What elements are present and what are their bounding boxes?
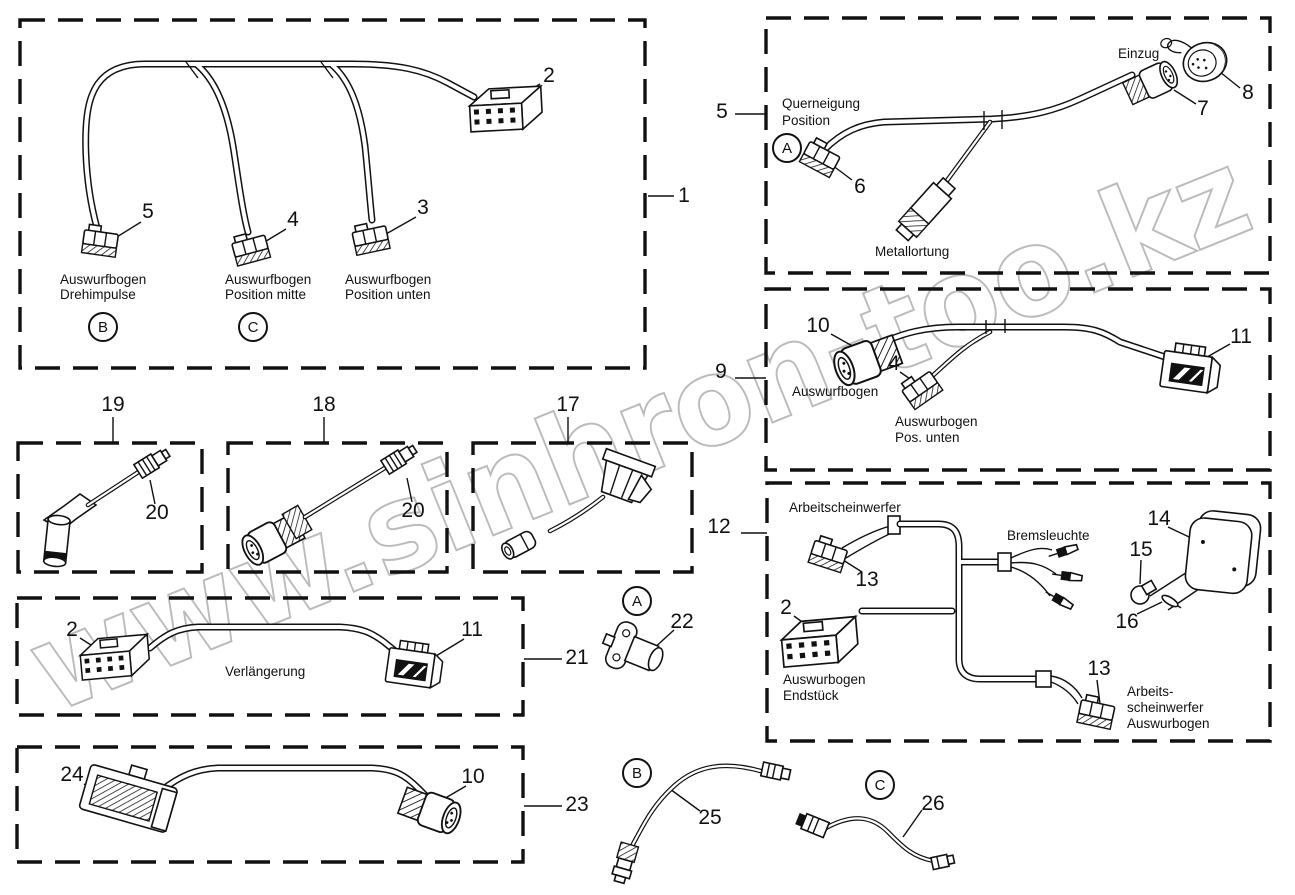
part-13-bottom-box12: 13 (1087, 657, 1110, 681)
caption-auswurbogen-box9-2: Pos. unten (895, 430, 960, 445)
lamp-14 (1184, 509, 1262, 596)
caption-auswurbogen-endstueck-2: Endstück (783, 688, 839, 703)
connector-25-end (761, 762, 791, 782)
part-8-box5: 8 (1242, 81, 1254, 105)
detail-letter-b-item25: B (622, 758, 652, 788)
caption-metallortung: Metallortung (875, 244, 949, 259)
caption-auswurfbogen-drehimpulse-2: Drehimpulse (60, 287, 136, 302)
part-20-box18: 20 (401, 499, 424, 523)
part-11-box9: 11 (1230, 325, 1252, 349)
connector-24 (79, 754, 181, 833)
connector-2-endstueck (780, 617, 859, 668)
part-13-top-box12: 13 (855, 568, 878, 592)
callout-18: 18 (312, 393, 335, 417)
part-3-box1: 3 (417, 196, 429, 220)
connector-13-bottom (1077, 694, 1116, 729)
connector-13-top (808, 535, 849, 573)
parts-diagram-page: www.sinhron-too.kz (0, 0, 1295, 895)
bulb-15 (1131, 580, 1156, 604)
part-15-box12: 15 (1129, 538, 1152, 562)
part-2-box12: 2 (780, 596, 792, 620)
part-14-box12: 14 (1147, 507, 1170, 531)
part-2-box21: 2 (66, 618, 78, 642)
detail-letter-b-box1: B (88, 312, 118, 342)
diagram-line-art: www.sinhron-too.kz (0, 0, 1295, 895)
connector-3 (351, 220, 390, 255)
caption-position-unten-1: Auswurfbogen (345, 272, 431, 287)
callout-19: 19 (101, 393, 124, 417)
part-7-box5: 7 (1197, 97, 1209, 121)
caption-position-unten-2: Position unten (345, 287, 431, 302)
sensor-22 (596, 616, 671, 683)
part-2-box1: 2 (543, 64, 555, 88)
callout-12: 12 (707, 515, 730, 539)
spade-terminal-2 (1052, 570, 1083, 583)
connector-26-right (931, 853, 955, 869)
part-22: 22 (670, 610, 693, 634)
callout-1: 1 (678, 184, 690, 208)
connector-2 (469, 86, 543, 132)
caption-verlaengerung: Verlängerung (225, 664, 305, 679)
detail-letter-c-box1: C (238, 312, 268, 342)
part-10-box9: 10 (806, 314, 829, 338)
caption-querneigung: Querneigung (782, 96, 860, 111)
callout-9: 9 (715, 360, 727, 384)
caption-auswurfbogen-box9: Auswurfbogen (792, 384, 878, 399)
caption-auswurbogen-endstueck-1: Auswurbogen (783, 672, 866, 687)
cable-26 (794, 811, 954, 869)
caption-auswurbogen-box9-1: Auswurbogen (895, 414, 978, 429)
caption-bremsleuchte: Bremsleuchte (1007, 528, 1090, 543)
part-11-box21: 11 (461, 618, 483, 642)
part-10-box23: 10 (461, 765, 484, 789)
callout-23: 23 (565, 793, 588, 817)
caption-position-mitte-1: Auswurfbogen (225, 272, 311, 287)
part-5-box1: 5 (142, 200, 154, 224)
detail-letter-a-item22: A (622, 586, 652, 616)
spade-terminal-3 (1044, 588, 1074, 611)
connector-26-left (794, 811, 829, 837)
part-25: 25 (698, 806, 721, 830)
connector-7 (1121, 58, 1181, 107)
callout-17: 17 (556, 393, 579, 417)
caption-arbeitsscheinwerfer-auswurbogen-1: Arbeits- (1127, 684, 1174, 699)
caption-arbeitscheinwerfer: Arbeitscheinwerfer (789, 500, 901, 515)
part-20-box19: 20 (145, 501, 168, 525)
connector-5 (81, 224, 119, 257)
caption-einzug: Einzug (1118, 46, 1159, 61)
part-4-box1: 4 (287, 208, 299, 232)
detail-letter-c-item26: C (865, 770, 895, 800)
callout-5: 5 (716, 100, 728, 124)
spade-terminal-1 (1047, 543, 1078, 561)
callout-21: 21 (565, 646, 588, 670)
caption-position: Position (782, 113, 830, 128)
caption-auswurfbogen-drehimpulse-1: Auswurfbogen (60, 272, 146, 287)
caption-position-mitte-2: Position mitte (225, 287, 306, 302)
connector-11 (1160, 342, 1223, 394)
connector-20a (134, 446, 172, 478)
harness-box23 (79, 754, 465, 837)
harness-box1 (81, 62, 542, 266)
part-24-box23: 24 (60, 763, 83, 787)
part-26: 26 (921, 792, 944, 816)
part-4-box9: 4 (888, 352, 900, 376)
connector-4 (230, 229, 270, 266)
caption-arbeitsscheinwerfer-auswurbogen-2: scheinwerfer (1127, 700, 1204, 715)
part-16-box12: 16 (1115, 610, 1138, 634)
part-6-box5: 6 (854, 175, 866, 199)
sensor-25-end (610, 842, 638, 884)
caption-arbeitsscheinwerfer-auswurbogen-3: Auswurbogen (1127, 716, 1210, 731)
detail-letter-a-box5: A (772, 133, 802, 163)
